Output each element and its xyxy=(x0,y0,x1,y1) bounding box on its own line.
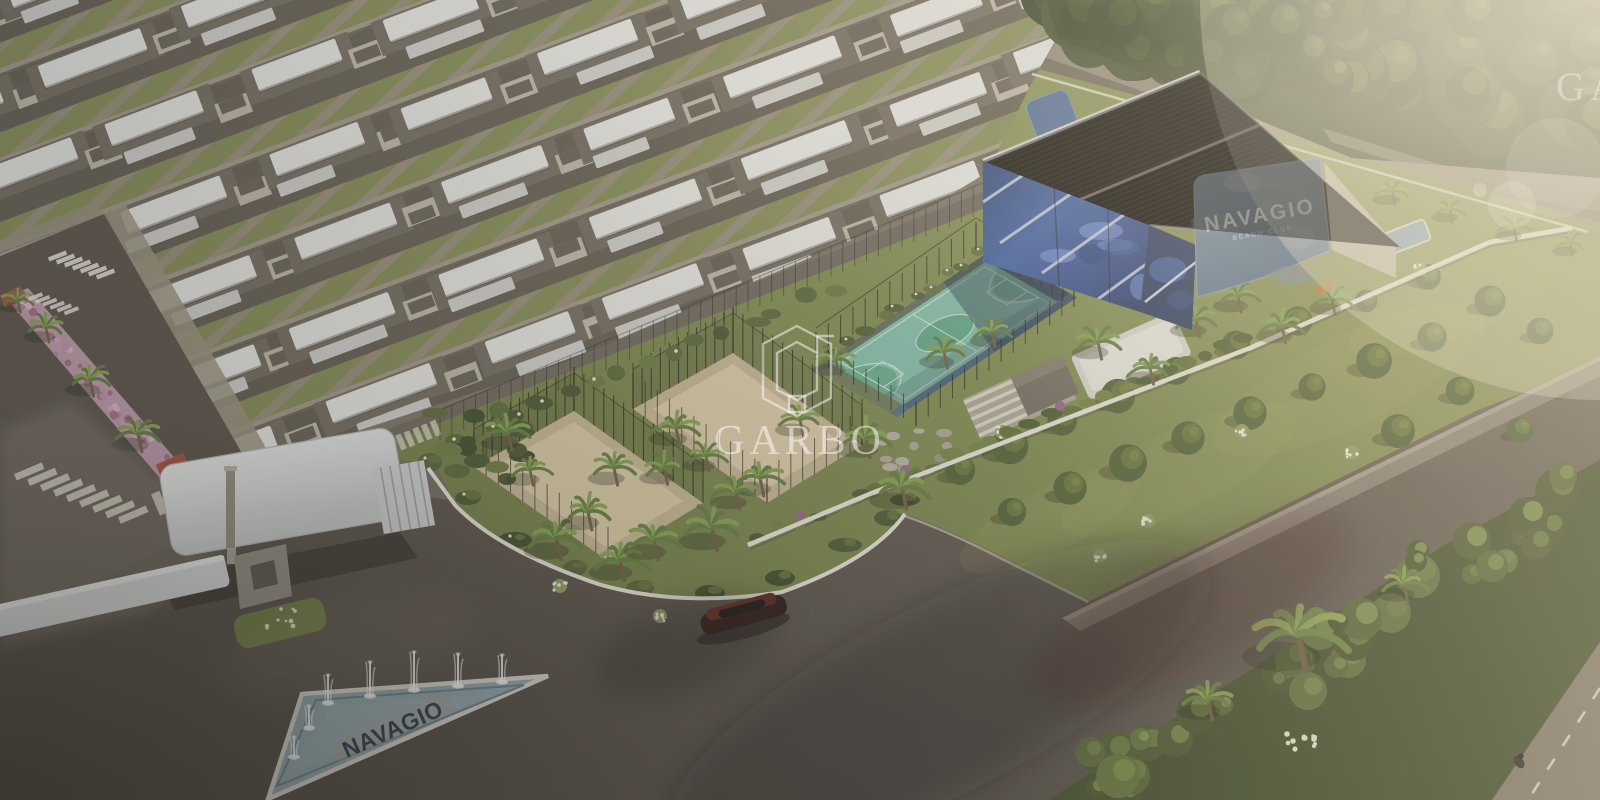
svg-text:GAR: GAR xyxy=(1556,64,1600,109)
svg-text:GARBO: GARBO xyxy=(714,418,886,464)
